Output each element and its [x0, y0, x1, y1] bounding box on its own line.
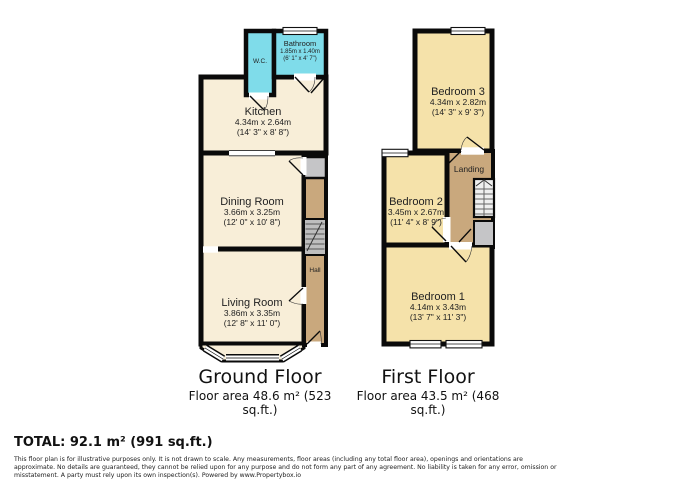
- bedroom2-imperial: (11' 4" x 8' 9"): [388, 218, 444, 228]
- disclaimer-line-2: approximate. No details are guaranteed, …: [14, 464, 557, 472]
- living-room-imperial: (12' 8" x 11' 0"): [221, 319, 282, 329]
- disclaimer-text: This floor plan is for illustrative purp…: [14, 456, 557, 479]
- landing-label: Landing: [454, 164, 484, 174]
- disclaimer-line-3: misstatement. A party must rely upon its…: [14, 472, 557, 480]
- ground-floor-area: Floor area 48.6 m² (523 sq.ft.): [180, 390, 340, 417]
- kitchen-imperial: (14' 3" x 8' 8"): [235, 128, 291, 138]
- bedroom3-imperial: (14' 3" x 9' 3"): [430, 108, 486, 118]
- dining-room-label: Dining Room 3.66m x 3.25m (12' 0" x 10' …: [220, 196, 284, 227]
- bathroom-label: Bathroom 1.85m x 1.40m (6' 1" x 4' 7"): [280, 40, 320, 63]
- ground-stairs: [304, 219, 326, 255]
- cupboard-shape: [304, 157, 326, 178]
- bedroom1-label: Bedroom 1 4.14m x 3.43m (13' 7" x 11' 3"…: [410, 291, 466, 322]
- bathroom-imperial: (6' 1" x 4' 7"): [280, 56, 320, 63]
- kitchen-dining-opening: [229, 150, 275, 156]
- dining-room-imperial: (12' 0" x 10' 8"): [220, 218, 284, 228]
- bathroom-metric: 1.85m x 1.40m: [280, 49, 320, 56]
- living-room-label: Living Room 3.86m x 3.35m (12' 8" x 11' …: [221, 297, 282, 328]
- kitchen-label: Kitchen 4.34m x 2.64m (14' 3" x 8' 8"): [235, 106, 291, 137]
- bedroom2-window: [382, 149, 408, 156]
- wc-label: W.C.: [253, 58, 267, 65]
- disclaimer-line-1: This floor plan is for illustrative purp…: [14, 456, 557, 464]
- ground-floor-title: Ground Floor: [198, 366, 321, 388]
- stairwell-shape: [474, 221, 494, 246]
- bedroom1-window-left: [410, 341, 441, 348]
- bedroom3-window: [451, 28, 485, 35]
- total-area-text: TOTAL: 92.1 m² (991 sq.ft.): [14, 435, 213, 450]
- dining-living-opening: [203, 246, 218, 252]
- bedroom1-imperial: (13' 7" x 11' 3"): [410, 313, 466, 323]
- bathroom-name: Bathroom: [280, 40, 320, 49]
- floor-plan-canvas: Bathroom 1.85m x 1.40m (6' 1" x 4' 7") W…: [0, 0, 700, 489]
- first-floor-stairs: [474, 179, 494, 217]
- hall-label: Hall: [309, 267, 320, 274]
- first-floor-area: Floor area 43.5 m² (468 sq.ft.): [348, 390, 508, 417]
- first-floor-title: First Floor: [381, 366, 474, 388]
- bathroom-window: [283, 28, 317, 35]
- bedroom1-window-right: [446, 341, 482, 348]
- bedroom2-label: Bedroom 2 3.45m x 2.67m (11' 4" x 8' 9"): [388, 196, 444, 227]
- bedroom3-label: Bedroom 3 4.34m x 2.82m (14' 3" x 9' 3"): [430, 86, 486, 117]
